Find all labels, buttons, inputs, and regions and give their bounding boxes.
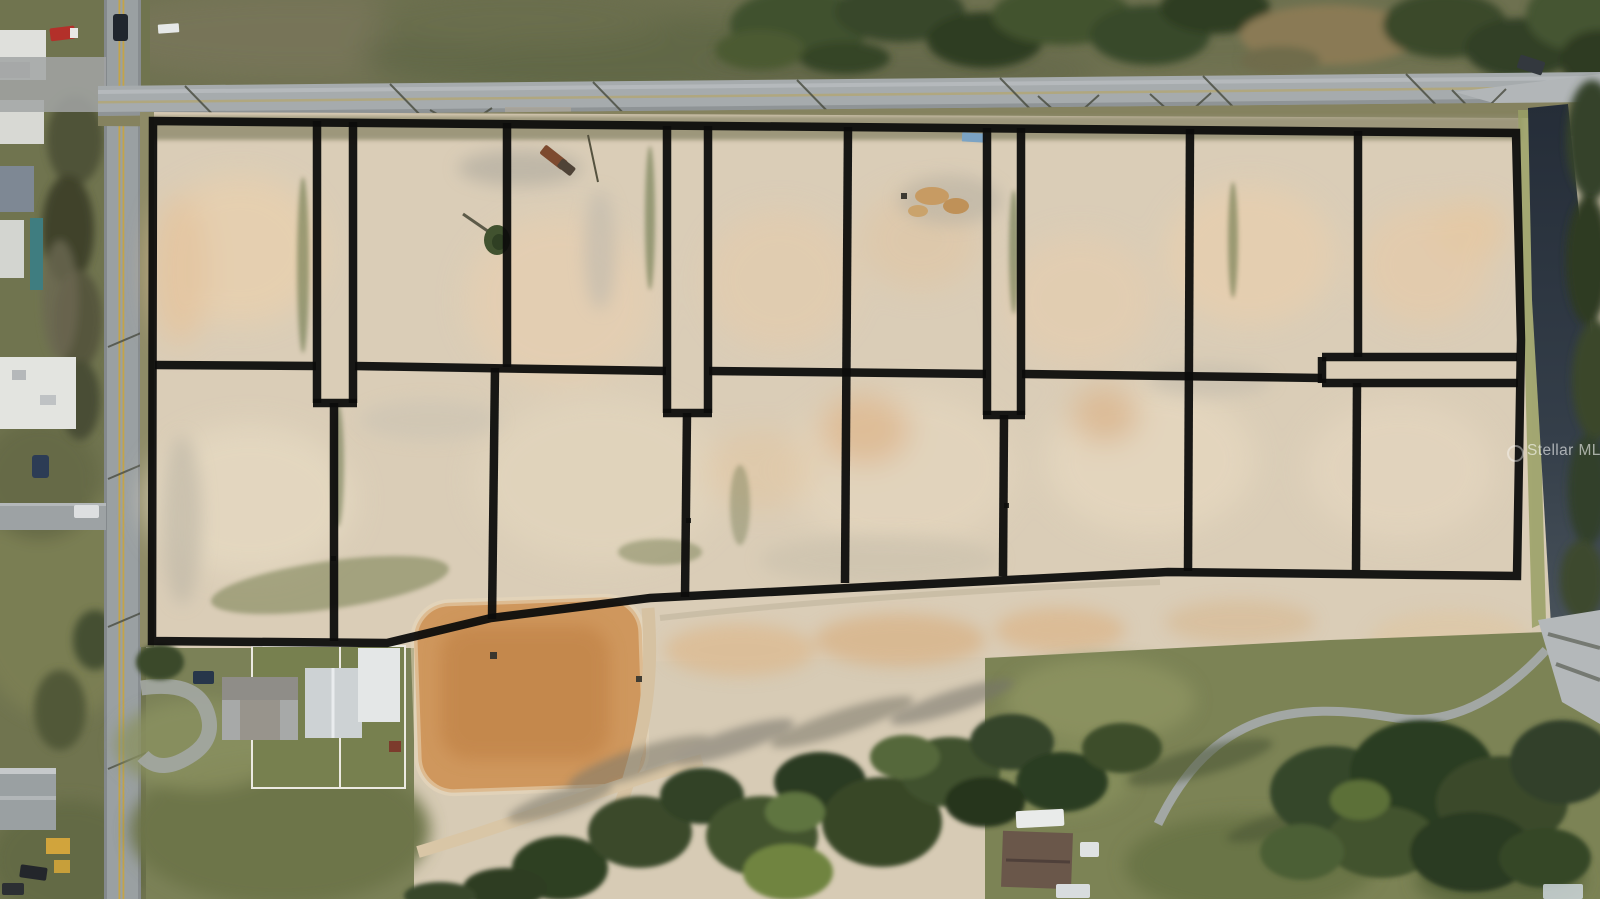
white-car <box>74 505 99 518</box>
dark-car-on-road <box>113 14 128 41</box>
stellar-mls-logo-icon <box>1507 445 1524 462</box>
yard-tree <box>136 644 184 680</box>
lot-line-lot-divider-b2-b3 <box>492 368 495 619</box>
lot-line-lot-divider-b7-b8 <box>1356 383 1357 570</box>
red-shed <box>389 741 401 752</box>
dark-blue-car <box>193 671 214 684</box>
dark-car-2 <box>2 883 24 895</box>
lot-line-lot-divider-b3-b4 <box>685 413 687 597</box>
lot-line-lot-divider-t6-t7 <box>1188 129 1190 571</box>
white-boat <box>1543 884 1583 899</box>
yellow-container <box>46 838 70 854</box>
white-car-se <box>1080 842 1099 857</box>
aerial-photo: Stellar MLS <box>0 0 1600 899</box>
lot-line-lot-divider-t4-t5 <box>845 127 848 583</box>
white-vehicle-bottom <box>1056 884 1090 898</box>
building-roof-gray <box>0 166 34 212</box>
lot-line-mid-line-a <box>155 365 316 366</box>
building-roof-large-white <box>0 357 76 429</box>
blue-car <box>32 455 49 478</box>
intersection-apron <box>0 57 106 112</box>
aerial-scene <box>0 0 1600 899</box>
white-trailer <box>158 23 180 33</box>
watermark: Stellar MLS <box>1527 442 1600 460</box>
teal-structure <box>30 218 43 290</box>
homestead <box>115 644 430 899</box>
lot-line-lot-divider-b5-b6 <box>1003 415 1004 576</box>
blue-tarp <box>962 132 986 142</box>
white-shed-roof <box>358 648 400 722</box>
white-rv-trailer <box>1016 809 1065 828</box>
lot-line-mid-line-d <box>1022 374 1322 378</box>
